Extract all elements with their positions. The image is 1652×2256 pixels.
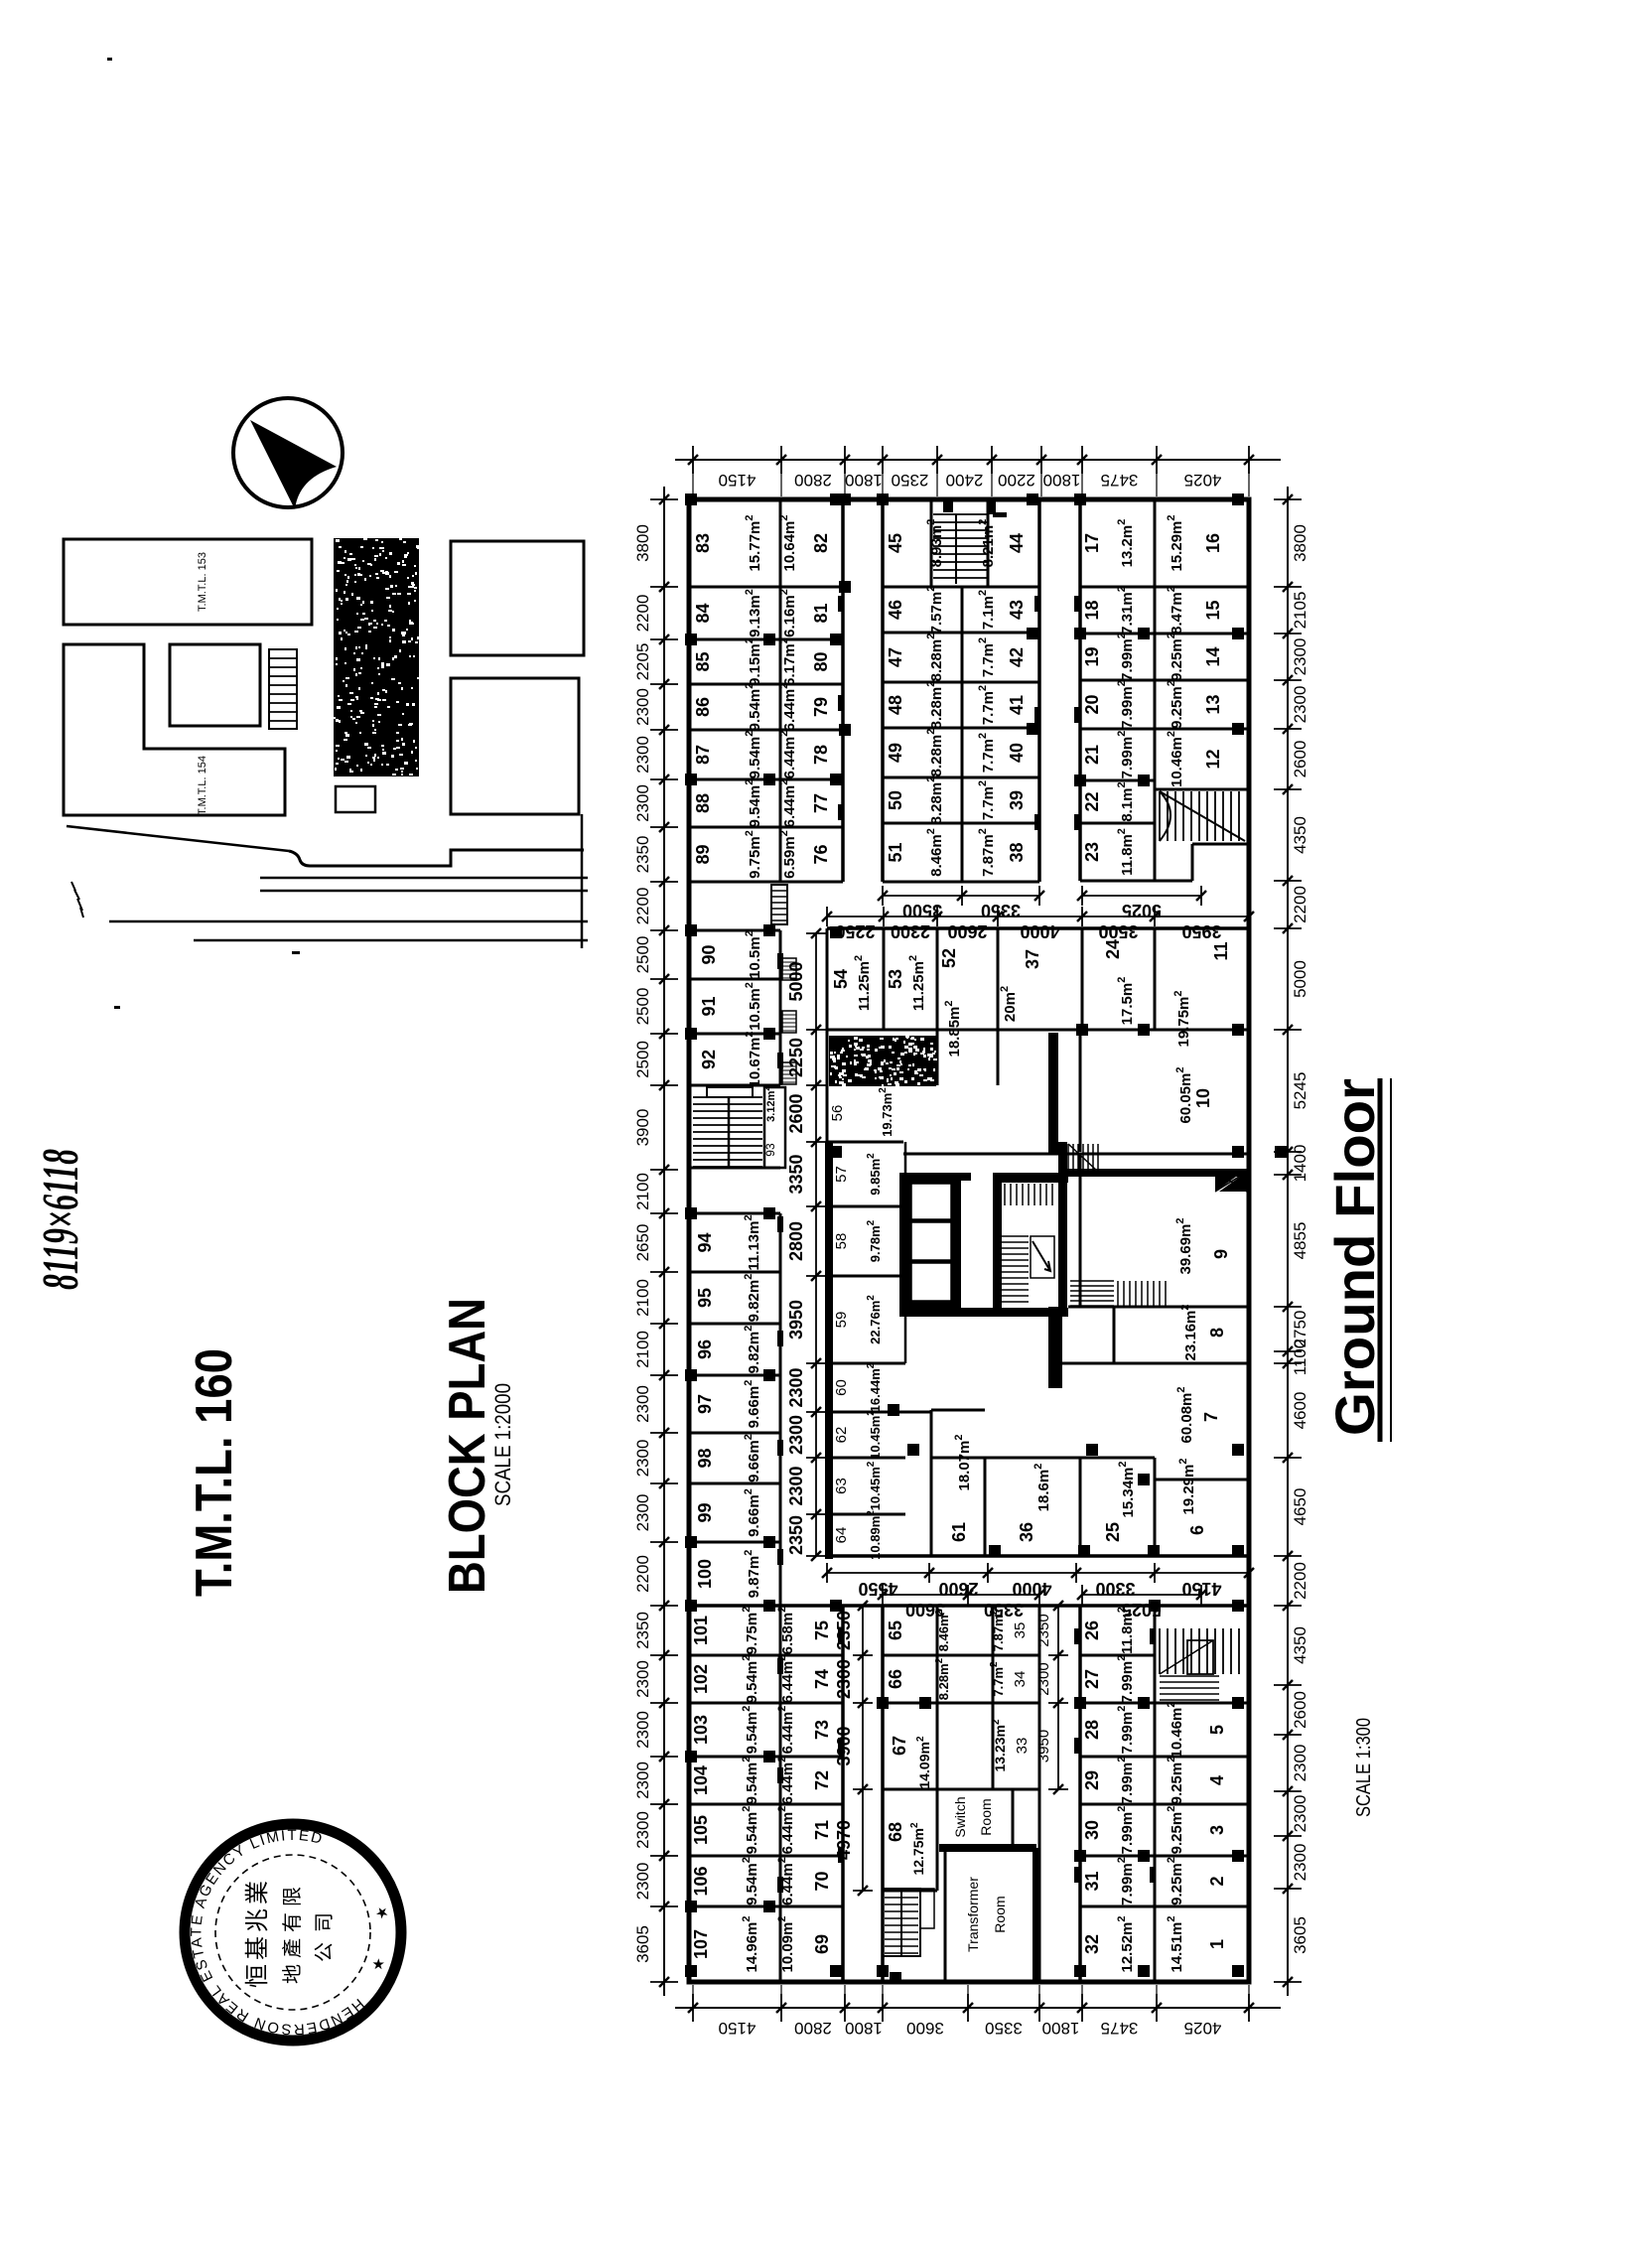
svg-text:19: 19	[1082, 646, 1102, 666]
svg-text:SCALE 1:300: SCALE 1:300	[1353, 1718, 1375, 1817]
svg-text:2300: 2300	[633, 1762, 652, 1799]
svg-text:8.93m2: 8.93m2	[925, 519, 945, 568]
svg-text:23.16m2: 23.16m2	[1179, 1305, 1199, 1361]
svg-text:33: 33	[1014, 1738, 1031, 1755]
svg-text:101: 101	[691, 1616, 711, 1645]
svg-text:2350: 2350	[892, 471, 929, 490]
svg-text:11.8m2: 11.8m2	[1116, 828, 1136, 876]
svg-text:40: 40	[1007, 743, 1027, 763]
svg-text:2300: 2300	[633, 1440, 652, 1478]
svg-text:45: 45	[886, 533, 905, 553]
svg-text:9.54m2: 9.54m2	[744, 779, 763, 828]
svg-text:4855: 4855	[1291, 1222, 1309, 1260]
svg-text:18.85m2: 18.85m2	[943, 1001, 963, 1057]
svg-text:3800: 3800	[633, 524, 652, 562]
svg-text:2500: 2500	[633, 988, 652, 1026]
svg-text:10: 10	[1193, 1088, 1213, 1108]
svg-text:2300: 2300	[633, 688, 652, 726]
svg-text:74: 74	[812, 1669, 832, 1689]
svg-text:Room: Room	[992, 1896, 1008, 1932]
svg-text:2350: 2350	[633, 1612, 652, 1649]
svg-text:8.28m2: 8.28m2	[925, 729, 945, 777]
svg-text:9.85m2: 9.85m2	[866, 1153, 883, 1196]
svg-text:38: 38	[1007, 842, 1027, 862]
svg-text:86: 86	[693, 697, 713, 717]
svg-text:4: 4	[1207, 1775, 1227, 1785]
svg-text:41: 41	[1007, 695, 1027, 715]
svg-text:14: 14	[1203, 646, 1223, 666]
svg-text:81: 81	[811, 603, 831, 623]
svg-text:18.6m2: 18.6m2	[1032, 1464, 1052, 1512]
svg-text:8: 8	[1207, 1328, 1227, 1338]
svg-text:2800: 2800	[794, 471, 832, 490]
svg-text:7.99m2: 7.99m2	[1116, 1655, 1136, 1704]
svg-text:6.44m2: 6.44m2	[778, 683, 798, 732]
svg-text:91: 91	[699, 996, 719, 1016]
svg-text:2200: 2200	[633, 1555, 652, 1593]
svg-text:30: 30	[1082, 1820, 1102, 1840]
svg-text:2600: 2600	[947, 921, 987, 941]
svg-text:72: 72	[812, 1770, 832, 1790]
svg-text:3350: 3350	[985, 2019, 1023, 2038]
svg-text:7.99m2: 7.99m2	[1116, 1857, 1136, 1905]
svg-text:14.09m2: 14.09m2	[915, 1736, 932, 1788]
svg-text:3605: 3605	[1291, 1916, 1309, 1954]
svg-text:9.75m2: 9.75m2	[741, 1607, 760, 1655]
svg-text:103: 103	[691, 1715, 711, 1745]
svg-text:7.87m2: 7.87m2	[977, 828, 997, 877]
svg-text:3600: 3600	[906, 2019, 944, 2038]
svg-text:6.44m2: 6.44m2	[778, 731, 798, 779]
svg-text:2300: 2300	[1291, 1745, 1309, 1782]
svg-text:76: 76	[811, 844, 831, 864]
svg-text:2300: 2300	[633, 1863, 652, 1901]
svg-text:3.12m2: 3.12m2	[762, 1086, 777, 1122]
svg-text:32: 32	[1082, 1934, 1102, 1954]
svg-text:2300: 2300	[633, 784, 652, 822]
svg-text:6.44m2: 6.44m2	[778, 779, 798, 828]
svg-text:39: 39	[1007, 790, 1027, 810]
svg-text:14.51m2: 14.51m2	[1166, 1916, 1185, 1973]
svg-text:公司: 公司	[314, 1903, 336, 1962]
svg-text:10.46m2: 10.46m2	[1166, 731, 1185, 787]
svg-text:9.54m2: 9.54m2	[741, 1806, 760, 1855]
svg-text:17: 17	[1082, 533, 1102, 553]
svg-text:4025: 4025	[1184, 2019, 1222, 2038]
svg-text:2200: 2200	[1291, 1562, 1309, 1600]
svg-text:2600: 2600	[1291, 741, 1309, 778]
svg-text:94: 94	[695, 1232, 715, 1252]
svg-text:2300: 2300	[633, 1711, 652, 1749]
svg-text:11.25m2: 11.25m2	[853, 955, 873, 1011]
svg-text:48: 48	[886, 695, 905, 715]
svg-text:6.44m2: 6.44m2	[776, 1706, 796, 1755]
svg-text:56: 56	[829, 1105, 846, 1122]
svg-text:28: 28	[1082, 1720, 1102, 1740]
svg-text:2500: 2500	[633, 1041, 652, 1078]
svg-text:69: 69	[812, 1934, 832, 1954]
svg-text:9.25m2: 9.25m2	[1166, 1857, 1185, 1905]
svg-text:8.28m2: 8.28m2	[925, 681, 945, 730]
svg-text:17.5m2: 17.5m2	[1116, 977, 1136, 1026]
svg-text:9.54m2: 9.54m2	[741, 1655, 760, 1704]
svg-text:39.69m2: 39.69m2	[1174, 1218, 1194, 1275]
svg-text:13.23m2: 13.23m2	[991, 1719, 1008, 1771]
svg-text:61: 61	[949, 1522, 969, 1542]
svg-text:95: 95	[695, 1288, 715, 1308]
svg-text:2300: 2300	[786, 1466, 806, 1505]
svg-text:65: 65	[886, 1621, 905, 1640]
svg-text:2205: 2205	[633, 643, 652, 681]
svg-text:96: 96	[695, 1339, 715, 1359]
svg-text:9.54m2: 9.54m2	[741, 1857, 760, 1905]
svg-text:7: 7	[1201, 1412, 1221, 1422]
svg-text:2350: 2350	[786, 1515, 806, 1555]
svg-text:2600: 2600	[938, 1579, 978, 1599]
svg-text:8.47m2: 8.47m2	[1166, 586, 1185, 634]
svg-text:1400: 1400	[1291, 1145, 1309, 1183]
svg-text:19.73m2: 19.73m2	[878, 1087, 895, 1137]
svg-text:9.25m2: 9.25m2	[1166, 1806, 1185, 1855]
svg-text:43: 43	[1007, 600, 1027, 620]
svg-text:10.67m2: 10.67m2	[744, 1032, 763, 1088]
svg-text:24: 24	[1103, 939, 1123, 959]
svg-text:恒基兆業: 恒基兆業	[244, 1877, 271, 1988]
svg-text:58: 58	[833, 1233, 850, 1250]
svg-text:20: 20	[1082, 694, 1102, 714]
svg-text:60.08m2: 60.08m2	[1175, 1387, 1195, 1444]
svg-text:9: 9	[1211, 1249, 1231, 1259]
svg-text:47: 47	[886, 647, 905, 667]
svg-text:9.66m2: 9.66m2	[743, 1380, 762, 1429]
svg-text:11: 11	[1211, 941, 1231, 960]
svg-text:2350: 2350	[1035, 1614, 1052, 1646]
svg-text:10.5m2: 10.5m2	[744, 930, 763, 979]
svg-text:9.25m2: 9.25m2	[1166, 680, 1185, 729]
svg-text:51: 51	[886, 842, 905, 862]
svg-text:2100: 2100	[633, 1331, 652, 1368]
svg-text:5: 5	[1207, 1725, 1227, 1735]
svg-text:2100: 2100	[633, 1279, 652, 1317]
svg-text:9.78m2: 9.78m2	[866, 1219, 883, 1262]
svg-text:3350: 3350	[786, 1154, 806, 1194]
svg-text:2200: 2200	[633, 595, 652, 633]
svg-text:2300: 2300	[633, 1660, 652, 1698]
svg-text:3: 3	[1207, 1825, 1227, 1835]
svg-text:2: 2	[1207, 1876, 1227, 1886]
svg-text:9.54m2: 9.54m2	[744, 683, 763, 732]
svg-text:10.45m2: 10.45m2	[866, 1461, 883, 1510]
svg-text:66: 66	[886, 1669, 905, 1689]
svg-text:2250: 2250	[835, 921, 875, 941]
svg-text:6: 6	[1187, 1525, 1207, 1535]
svg-text:9.66m2: 9.66m2	[743, 1434, 762, 1482]
svg-text:12.75m2: 12.75m2	[909, 1822, 926, 1875]
svg-text:50: 50	[886, 790, 905, 810]
svg-text:9.13m2: 9.13m2	[744, 589, 763, 637]
svg-text:8.28m2: 8.28m2	[925, 776, 945, 825]
svg-text:98: 98	[695, 1448, 715, 1468]
svg-text:4350: 4350	[1291, 1626, 1309, 1664]
svg-text:3950: 3950	[1035, 1730, 1052, 1762]
svg-text:59: 59	[833, 1312, 850, 1329]
svg-text:Ground Floor: Ground Floor	[1323, 1078, 1386, 1436]
svg-text:Switch: Switch	[952, 1796, 968, 1837]
svg-text:T.M.T.L. 160: T.M.T.L. 160	[186, 1348, 243, 1597]
svg-text:9.54m2: 9.54m2	[741, 1706, 760, 1755]
svg-text:13.2m2: 13.2m2	[1116, 519, 1136, 568]
svg-text:2300: 2300	[786, 1367, 806, 1407]
svg-text:4025: 4025	[1184, 471, 1222, 490]
svg-text:88: 88	[693, 793, 713, 813]
svg-text:15.34m2: 15.34m2	[1117, 1462, 1137, 1518]
svg-text:9.54m2: 9.54m2	[744, 731, 763, 779]
svg-text:T.M.T.L. 153: T.M.T.L. 153	[197, 552, 208, 612]
svg-text:89: 89	[693, 844, 713, 864]
svg-text:4550: 4550	[858, 1579, 897, 1599]
svg-text:2800: 2800	[794, 2019, 832, 2038]
svg-text:18: 18	[1082, 600, 1102, 620]
svg-text:26: 26	[1082, 1621, 1102, 1640]
svg-text:93: 93	[763, 1143, 777, 1157]
svg-text:7.7m2: 7.7m2	[989, 1661, 1006, 1697]
svg-text:22: 22	[1082, 791, 1102, 811]
svg-text:7.31m2: 7.31m2	[1116, 586, 1136, 634]
svg-text:2800: 2800	[786, 1221, 806, 1261]
svg-text:2100: 2100	[633, 1173, 652, 1210]
svg-text:2500: 2500	[633, 936, 652, 974]
svg-text:63: 63	[833, 1478, 850, 1494]
svg-text:31: 31	[1082, 1871, 1102, 1891]
svg-text:2105: 2105	[1291, 592, 1309, 630]
svg-text:1: 1	[1207, 1939, 1227, 1949]
svg-text:4350: 4350	[1291, 816, 1309, 854]
svg-text:5025: 5025	[1122, 901, 1162, 920]
svg-text:3300: 3300	[1095, 1579, 1135, 1599]
svg-text:2300: 2300	[633, 1811, 652, 1849]
svg-text:73: 73	[812, 1720, 832, 1740]
svg-text:5245: 5245	[1291, 1072, 1309, 1110]
svg-text:2300: 2300	[1291, 638, 1309, 676]
svg-text:4000: 4000	[1012, 1579, 1051, 1599]
svg-text:68: 68	[886, 1822, 905, 1842]
svg-text:7.7m2: 7.7m2	[977, 733, 997, 773]
svg-text:7.99m2: 7.99m2	[1116, 1706, 1136, 1755]
svg-text:42: 42	[1007, 647, 1027, 667]
svg-text:2300: 2300	[786, 1415, 806, 1455]
svg-text:4600: 4600	[1291, 1392, 1309, 1430]
svg-text:16.44m2: 16.44m2	[866, 1362, 883, 1412]
svg-text:9.54m2: 9.54m2	[741, 1757, 760, 1805]
svg-text:3605: 3605	[633, 1925, 652, 1963]
svg-text:2200: 2200	[998, 471, 1035, 490]
svg-text:8119×6118: 8119×6118	[33, 1149, 89, 1290]
svg-text:SCALE 1:2000: SCALE 1:2000	[490, 1383, 515, 1506]
svg-text:60: 60	[833, 1379, 850, 1396]
svg-text:53: 53	[886, 969, 905, 989]
svg-text:35: 35	[1012, 1622, 1029, 1639]
svg-text:6.44m2: 6.44m2	[776, 1806, 796, 1855]
svg-text:9.25m2: 9.25m2	[1166, 633, 1185, 681]
svg-text:3900: 3900	[633, 1109, 652, 1147]
svg-text:1800: 1800	[1043, 471, 1081, 490]
svg-text:92: 92	[699, 1050, 719, 1069]
svg-text:27: 27	[1082, 1669, 1102, 1689]
svg-text:106: 106	[691, 1866, 711, 1896]
svg-text:BLOCK PLAN: BLOCK PLAN	[439, 1298, 496, 1594]
svg-text:7.99m2: 7.99m2	[1116, 680, 1136, 729]
svg-text:15.77m2: 15.77m2	[744, 515, 763, 572]
svg-text:82: 82	[811, 533, 831, 553]
svg-text:46: 46	[886, 600, 905, 620]
svg-text:9.82m2: 9.82m2	[743, 1326, 762, 1374]
svg-text:37: 37	[1023, 949, 1042, 969]
svg-text:11.25m2: 11.25m2	[907, 955, 927, 1011]
svg-text:77: 77	[811, 793, 831, 813]
svg-text:105: 105	[691, 1815, 711, 1845]
svg-text:1800: 1800	[845, 2019, 883, 2038]
svg-text:102: 102	[691, 1664, 711, 1694]
svg-text:80: 80	[811, 651, 831, 671]
svg-text:7.7m2: 7.7m2	[977, 780, 997, 820]
svg-text:12.52m2: 12.52m2	[1116, 1916, 1136, 1973]
svg-text:71: 71	[812, 1820, 832, 1840]
svg-text:7.99m2: 7.99m2	[1116, 633, 1136, 681]
svg-text:9.25m2: 9.25m2	[1166, 1757, 1185, 1805]
svg-text:2250: 2250	[786, 1038, 806, 1077]
svg-text:6.59m2: 6.59m2	[778, 830, 798, 879]
svg-text:11.13m2: 11.13m2	[743, 1214, 762, 1270]
svg-text:10.46m2: 10.46m2	[1166, 1702, 1185, 1759]
svg-text:1800: 1800	[845, 471, 883, 490]
svg-text:90: 90	[699, 944, 719, 964]
svg-text:7.99m2: 7.99m2	[1116, 731, 1136, 779]
svg-text:3800: 3800	[1291, 524, 1309, 562]
svg-text:8.28m2: 8.28m2	[925, 634, 945, 682]
svg-text:54: 54	[831, 969, 851, 989]
svg-text:3350: 3350	[984, 1600, 1024, 1620]
svg-text:2200: 2200	[1291, 886, 1309, 923]
svg-text:2600: 2600	[1291, 1691, 1309, 1729]
svg-text:2300: 2300	[891, 921, 930, 941]
svg-text:60.05m2: 60.05m2	[1174, 1067, 1194, 1124]
svg-text:2300: 2300	[633, 1494, 652, 1532]
svg-text:10.89m2: 10.89m2	[866, 1510, 883, 1560]
svg-text:21: 21	[1082, 745, 1102, 765]
svg-text:2300: 2300	[1291, 686, 1309, 724]
svg-text:14.96m2: 14.96m2	[741, 1916, 760, 1973]
svg-text:6.58m2: 6.58m2	[776, 1607, 796, 1655]
svg-text:1800: 1800	[1042, 2019, 1080, 2038]
svg-text:10.5m2: 10.5m2	[744, 982, 763, 1031]
svg-text:104: 104	[691, 1765, 711, 1795]
svg-text:9.15m2: 9.15m2	[744, 637, 763, 686]
svg-text:地產有限: 地產有限	[281, 1881, 304, 1984]
svg-text:3475: 3475	[1101, 471, 1139, 490]
svg-text:2300: 2300	[633, 736, 652, 774]
svg-text:44: 44	[1007, 533, 1027, 553]
svg-text:62: 62	[833, 1427, 850, 1444]
svg-text:25: 25	[1103, 1522, 1123, 1542]
svg-text:4000: 4000	[1020, 921, 1059, 941]
svg-text:87: 87	[693, 745, 713, 765]
svg-text:2650: 2650	[633, 1224, 652, 1262]
svg-text:9.82m2: 9.82m2	[743, 1274, 762, 1323]
svg-text:49: 49	[886, 743, 905, 763]
svg-text:19.75m2: 19.75m2	[1172, 991, 1192, 1048]
svg-text:8.1m2: 8.1m2	[1116, 781, 1136, 821]
svg-text:6.17m2: 6.17m2	[778, 637, 798, 686]
svg-text:2300: 2300	[1035, 1662, 1052, 1695]
svg-text:7.99m2: 7.99m2	[1116, 1806, 1136, 1855]
svg-text:8.21m2: 8.21m2	[977, 519, 997, 568]
svg-text:7.7m2: 7.7m2	[977, 685, 997, 725]
svg-text:10.09m2: 10.09m2	[776, 1916, 796, 1973]
svg-text:15: 15	[1203, 600, 1223, 620]
svg-text:7.1m2: 7.1m2	[977, 590, 997, 630]
svg-text:70: 70	[812, 1871, 832, 1891]
svg-text:13: 13	[1203, 694, 1223, 714]
svg-text:67: 67	[890, 1736, 909, 1756]
svg-text:52: 52	[939, 948, 959, 968]
svg-text:7.7m2: 7.7m2	[977, 637, 997, 677]
svg-text:7.99m2: 7.99m2	[1116, 1757, 1136, 1805]
svg-text:34: 34	[1012, 1671, 1029, 1688]
svg-text:T.M.T.L. 154: T.M.T.L. 154	[197, 756, 208, 815]
svg-text:29: 29	[1082, 1770, 1102, 1790]
svg-text:5000: 5000	[786, 961, 806, 1001]
svg-text:16: 16	[1203, 533, 1223, 553]
svg-text:8.28m2: 8.28m2	[934, 1657, 951, 1700]
svg-text:6.16m2: 6.16m2	[778, 589, 798, 637]
svg-text:2600: 2600	[786, 1093, 806, 1133]
svg-text:2200: 2200	[633, 888, 652, 925]
svg-text:12: 12	[1203, 749, 1223, 769]
svg-text:100: 100	[695, 1559, 715, 1589]
svg-text:9.87m2: 9.87m2	[743, 1550, 762, 1599]
svg-text:85: 85	[693, 651, 713, 671]
svg-text:Room: Room	[978, 1798, 994, 1835]
svg-text:Transformer: Transformer	[965, 1877, 981, 1952]
svg-text:36: 36	[1017, 1522, 1036, 1542]
svg-text:9.75m2: 9.75m2	[744, 830, 763, 879]
svg-text:84: 84	[693, 603, 713, 623]
svg-text:107: 107	[691, 1929, 711, 1959]
svg-text:57: 57	[833, 1166, 850, 1183]
svg-text:78: 78	[811, 745, 831, 765]
svg-text:15.29m2: 15.29m2	[1166, 515, 1185, 572]
svg-text:10.64m2: 10.64m2	[778, 515, 798, 572]
svg-text:5025: 5025	[1122, 1600, 1162, 1620]
svg-text:83: 83	[693, 533, 713, 553]
svg-text:4150: 4150	[719, 471, 757, 490]
svg-text:7.57m2: 7.57m2	[925, 586, 945, 634]
svg-text:3500: 3500	[1098, 921, 1138, 941]
svg-text:2350: 2350	[633, 836, 652, 874]
svg-text:64: 64	[833, 1527, 850, 1544]
svg-text:3950: 3950	[1181, 921, 1221, 941]
svg-text:10.45m2: 10.45m2	[866, 1410, 883, 1460]
svg-text:5000: 5000	[1291, 960, 1309, 998]
svg-text:3475: 3475	[1101, 2019, 1139, 2038]
svg-text:19.29m2: 19.29m2	[1177, 1459, 1197, 1515]
svg-text:18.07m2: 18.07m2	[953, 1435, 973, 1491]
svg-text:★ ★: ★ ★	[368, 1901, 393, 1974]
svg-text:22.76m2: 22.76m2	[866, 1295, 883, 1344]
svg-text:8.46m2: 8.46m2	[925, 828, 945, 877]
svg-text:3950: 3950	[786, 1300, 806, 1339]
svg-text:4150: 4150	[719, 2019, 757, 2038]
